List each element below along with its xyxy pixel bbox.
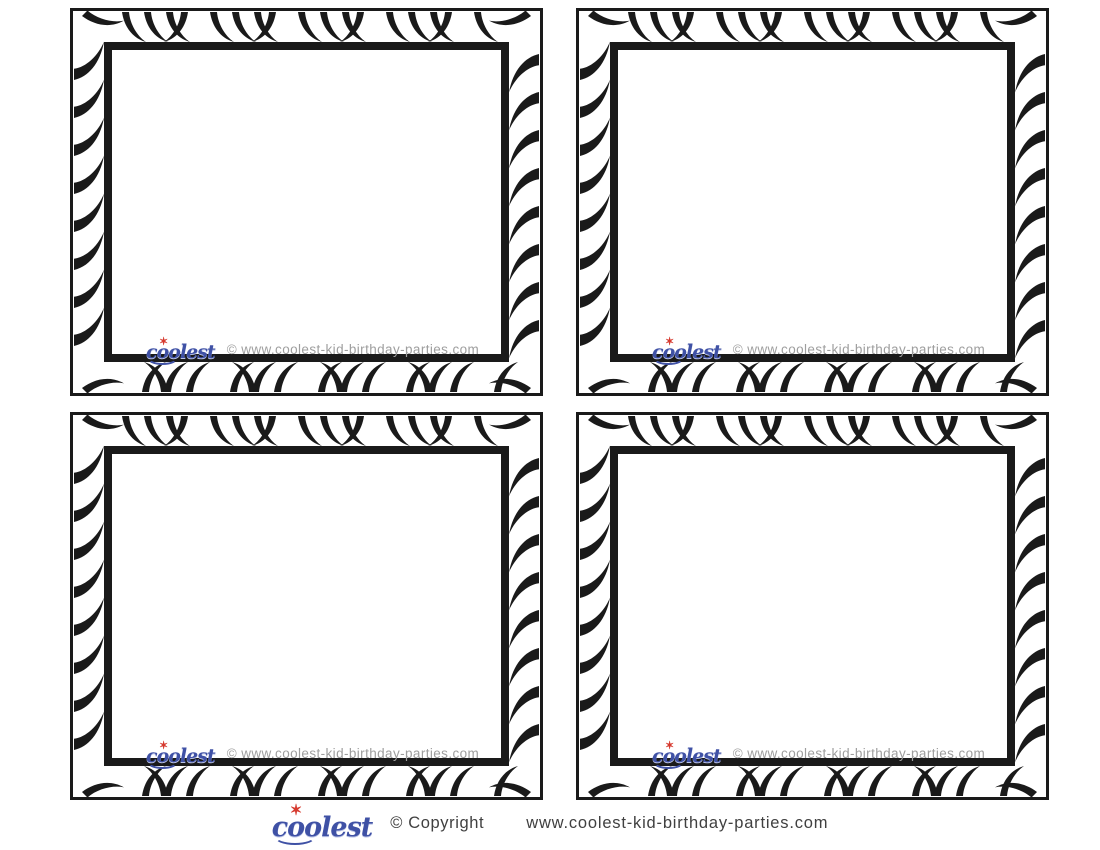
star-icon: ✶ bbox=[159, 740, 167, 751]
coolest-logo: ✶ coolest bbox=[146, 337, 215, 362]
coolest-logo: ✶ coolest bbox=[652, 741, 721, 766]
blank-card-1: ✶ coolest © www.coolest-kid-birthday-par… bbox=[70, 8, 543, 396]
coolest-logo: ✶ coolest bbox=[146, 741, 215, 766]
watermark: ✶ coolest © www.coolest-kid-birthday-par… bbox=[652, 337, 985, 362]
star-icon: ✶ bbox=[159, 336, 167, 347]
smile-underline bbox=[147, 351, 178, 365]
smile-underline bbox=[653, 351, 684, 365]
watermark: ✶ coolest © www.coolest-kid-birthday-par… bbox=[146, 337, 479, 362]
smile-underline bbox=[147, 755, 178, 769]
star-icon: ✶ bbox=[665, 336, 673, 347]
printable-sheet: ✶ coolest © www.coolest-kid-birthday-par… bbox=[0, 0, 1100, 850]
coolest-logo: ✶ coolest bbox=[272, 806, 373, 841]
blank-card-3: ✶ coolest © www.coolest-kid-birthday-par… bbox=[70, 412, 543, 800]
watermark: ✶ coolest © www.coolest-kid-birthday-par… bbox=[652, 741, 985, 766]
star-icon: ✶ bbox=[290, 803, 302, 818]
watermark-url: © www.coolest-kid-birthday-parties.com bbox=[227, 342, 479, 357]
footer: ✶ coolest © Copyright www.coolest-kid-bi… bbox=[0, 806, 1100, 841]
watermark: ✶ coolest © www.coolest-kid-birthday-par… bbox=[146, 741, 479, 766]
blank-card-2: ✶ coolest © www.coolest-kid-birthday-par… bbox=[576, 8, 1049, 396]
watermark-url: © www.coolest-kid-birthday-parties.com bbox=[227, 746, 479, 761]
smile-underline bbox=[274, 828, 316, 845]
coolest-logo: ✶ coolest bbox=[652, 337, 721, 362]
footer-copyright: © Copyright bbox=[390, 814, 484, 833]
star-icon: ✶ bbox=[665, 740, 673, 751]
footer-url: www.coolest-kid-birthday-parties.com bbox=[526, 814, 828, 833]
blank-card-4: ✶ coolest © www.coolest-kid-birthday-par… bbox=[576, 412, 1049, 800]
smile-underline bbox=[653, 755, 684, 769]
watermark-url: © www.coolest-kid-birthday-parties.com bbox=[733, 746, 985, 761]
watermark-url: © www.coolest-kid-birthday-parties.com bbox=[733, 342, 985, 357]
